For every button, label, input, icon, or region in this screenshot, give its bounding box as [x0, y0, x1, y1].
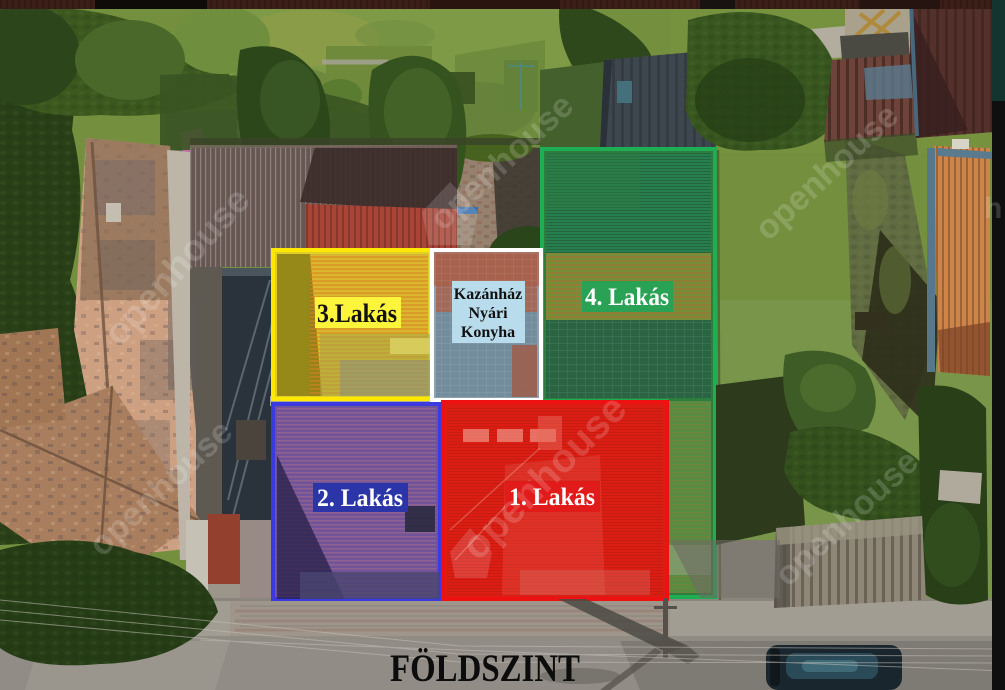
- svg-text:3.Lakás: 3.Lakás: [317, 299, 397, 328]
- svg-text:Kazánház: Kazánház: [454, 286, 522, 303]
- svg-text:Nyári: Nyári: [468, 305, 508, 322]
- svg-text:h: h: [984, 192, 1002, 225]
- svg-text:2. Lakás: 2. Lakás: [317, 485, 403, 512]
- svg-text:Konyha: Konyha: [461, 324, 515, 341]
- svg-text:4. Lakás: 4. Lakás: [585, 284, 669, 311]
- svg-text:FÖLDSZINT: FÖLDSZINT: [390, 647, 580, 690]
